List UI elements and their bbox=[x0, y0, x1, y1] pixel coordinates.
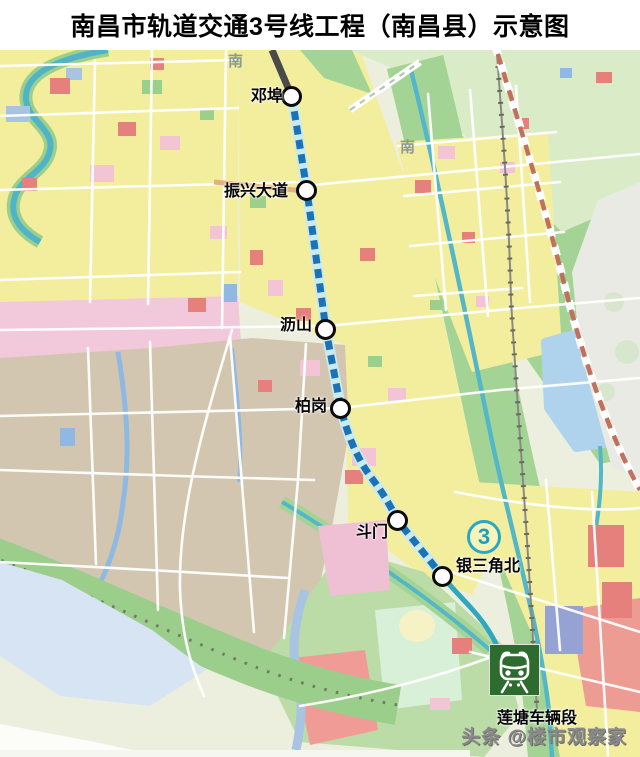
station-marker-lishan bbox=[315, 319, 336, 340]
station-label-zhenxing-dadao: 振兴大道 bbox=[224, 183, 288, 200]
station-label-doumen: 斗门 bbox=[356, 524, 388, 541]
map-label-nan-2: 南 bbox=[400, 136, 415, 157]
watermark: 头条 @楼市观察家 bbox=[461, 722, 627, 749]
screenshot-root: 南昌市轨道交通3号线工程（南昌县）示意图 bbox=[0, 0, 640, 757]
station-marker-doumen bbox=[387, 510, 408, 531]
station-label-lishan: 沥山 bbox=[280, 317, 312, 334]
map-canvas: 南 南 邓埠 振兴大道 沥山 柏岗 斗门 银三角北 3 bbox=[0, 50, 640, 757]
depot-icon bbox=[489, 644, 540, 696]
line-3-badge: 3 bbox=[467, 520, 501, 554]
line-number: 3 bbox=[478, 526, 490, 548]
station-marker-baigang bbox=[330, 398, 351, 419]
station-label-dengbu: 邓埠 bbox=[251, 88, 283, 105]
station-label-yinsanjiaobei: 银三角北 bbox=[456, 558, 520, 575]
station-label-baigang: 柏岗 bbox=[295, 398, 327, 415]
station-marker-zhenxing-dadao bbox=[296, 180, 317, 201]
station-marker-yinsanjiaobei bbox=[432, 566, 453, 587]
page-title: 南昌市轨道交通3号线工程（南昌县）示意图 bbox=[71, 7, 570, 43]
title-bar: 南昌市轨道交通3号线工程（南昌县）示意图 bbox=[0, 0, 640, 50]
station-marker-dengbu bbox=[281, 86, 302, 107]
map-label-nan-1: 南 bbox=[228, 50, 243, 71]
train-icon bbox=[489, 644, 540, 696]
